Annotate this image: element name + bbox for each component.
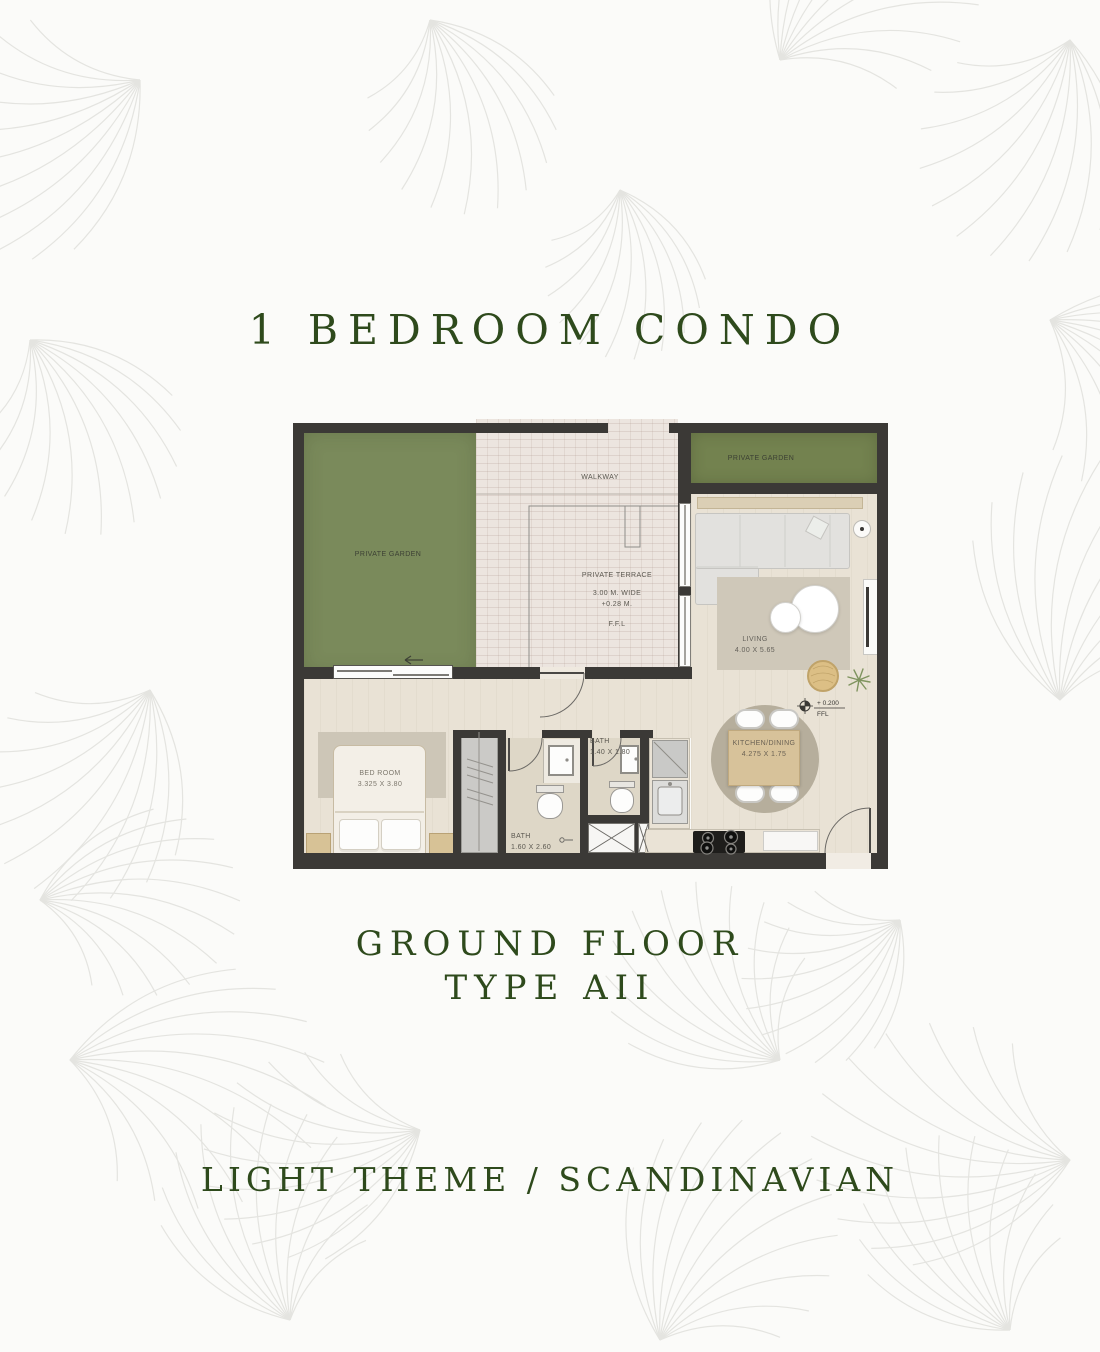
bath-small-dims: 1.40 X 1.80 <box>590 748 630 759</box>
coffee-table-small <box>770 602 801 633</box>
dining-chair <box>769 709 799 729</box>
stove-cooktop <box>693 831 745 853</box>
nightstand <box>306 833 331 854</box>
entrance-door-opening <box>826 853 871 869</box>
pendant-lamp-center <box>860 527 864 531</box>
wall-bottom-right <box>871 853 888 869</box>
page-title: 1 BEDROOM CONDO <box>0 306 1100 354</box>
kitchen-name: KITCHEN/DINING <box>733 739 796 750</box>
wall-top-left <box>293 423 608 433</box>
living-label: LIVING 4.00 X 5.65 <box>735 635 775 657</box>
console-shelf <box>697 497 863 509</box>
pillow <box>339 819 379 850</box>
garden-right-label: PRIVATE GARDEN <box>728 454 794 465</box>
bath-large-sink <box>548 745 574 776</box>
terrace-door-opening <box>540 667 585 679</box>
bedroom-sliding-window-pane <box>393 674 449 676</box>
dining-chair <box>735 709 765 729</box>
wall-bottom-left <box>293 853 826 869</box>
wall-garden-right-bottom <box>678 483 877 494</box>
bath-small-name: BATH <box>590 737 630 748</box>
wall-mid-b <box>453 667 540 679</box>
kitchen-dims: 4.275 X 1.75 <box>733 750 796 761</box>
type-label: TYPE AII <box>0 966 1100 1010</box>
terrace-label: PRIVATE TERRACE 3.00 M. WIDE +0.28 M. F.… <box>582 571 652 630</box>
bath-small-label: BATH 1.40 X 1.80 <box>590 737 630 759</box>
dining-chair <box>769 783 799 803</box>
floor-type-heading: GROUND FLOOR TYPE AII <box>0 922 1100 1010</box>
wall-wardrobe-left <box>453 730 461 853</box>
wall-shaft-divider <box>635 823 638 853</box>
theme-heading: LIGHT THEME / SCANDINAVIAN <box>0 1160 1100 1199</box>
bedroom-name: BED ROOM <box>358 769 403 780</box>
pillow <box>381 819 421 850</box>
walkway-terrace-floor <box>476 419 678 672</box>
wall-mid-c <box>585 667 692 679</box>
nightstand <box>429 833 454 854</box>
living-name: LIVING <box>735 635 775 646</box>
wall-top-right <box>669 423 888 433</box>
floor-plan: + 0.200 FFL <box>293 419 888 869</box>
bed-fold-line <box>335 811 424 813</box>
bath-large-label: BATH 1.60 X 2.60 <box>511 832 551 854</box>
poster: 1 BEDROOM CONDO <box>0 0 1100 1352</box>
wall-between-baths <box>580 738 588 853</box>
fridge <box>652 740 688 778</box>
kitchen-sink <box>652 780 688 824</box>
terrace-width: 3.00 M. WIDE <box>582 589 652 600</box>
kitchen-label: KITCHEN/DINING 4.275 X 1.75 <box>733 739 796 761</box>
dining-chair <box>735 783 765 803</box>
bath-large-toilet <box>537 793 563 819</box>
bath-small-toilet <box>610 788 634 813</box>
terrace-level: +0.28 M. <box>582 600 652 611</box>
counter-white-section <box>763 831 818 851</box>
wardrobe <box>461 730 498 853</box>
terrace-name: PRIVATE TERRACE <box>582 571 652 582</box>
living-glass-door-mullion <box>684 505 686 585</box>
bath-large-toilet-tank <box>536 785 564 793</box>
bedroom-label: BED ROOM 3.325 X 3.80 <box>358 769 403 791</box>
wall-bath-top-a <box>453 730 506 738</box>
wall-bath-small-right <box>640 738 649 823</box>
wall-bath-small-bottom <box>580 815 649 823</box>
bedroom-dims: 3.325 X 3.80 <box>358 780 403 791</box>
bedroom-sliding-window <box>333 665 453 679</box>
wall-bath-large-left <box>498 738 506 853</box>
living-glass-door-mullion <box>684 597 686 665</box>
bath-large-dims: 1.60 X 2.60 <box>511 843 551 854</box>
floor-label: GROUND FLOOR <box>0 922 1100 966</box>
wall-bath-top-b <box>542 730 592 738</box>
wall-right <box>877 423 888 869</box>
wall-left <box>293 423 304 869</box>
bath-small-toilet-tank <box>609 781 635 788</box>
garden-left-label: PRIVATE GARDEN <box>355 550 421 561</box>
shaft-large <box>588 823 635 853</box>
living-dims: 4.00 X 5.65 <box>735 646 775 657</box>
sofa <box>695 513 850 569</box>
bath-large-name: BATH <box>511 832 551 843</box>
rattan-chair <box>807 660 839 692</box>
wall-mid-a <box>293 667 333 679</box>
terrace-ffl: F.F.L <box>582 620 652 631</box>
tv-screen <box>866 587 869 647</box>
bedroom-sliding-window-pane <box>337 670 392 672</box>
walkway-label: WALKWAY <box>581 473 619 484</box>
